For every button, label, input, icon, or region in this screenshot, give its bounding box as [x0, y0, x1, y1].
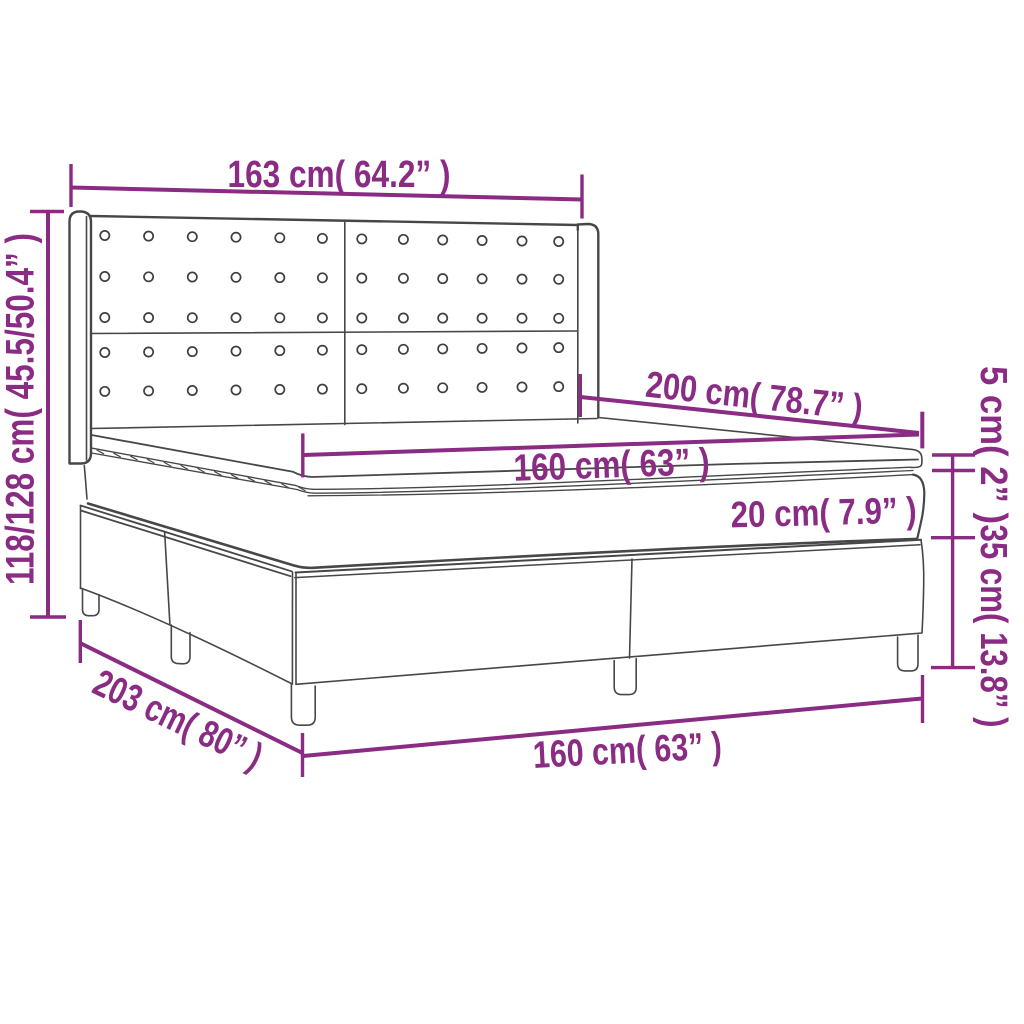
svg-text:5 cm( 2” ): 5 cm( 2” ) [972, 366, 1014, 524]
svg-text:160 cm( 63” ): 160 cm( 63” ) [513, 441, 710, 490]
svg-text:35 cm( 13.8” ): 35 cm( 13.8” ) [972, 525, 1014, 728]
svg-text:118/128 cm( 45.5/50.4” ): 118/128 cm( 45.5/50.4” ) [0, 233, 43, 585]
svg-text:20 cm( 7.9” ): 20 cm( 7.9” ) [730, 490, 917, 536]
svg-text:163 cm( 64.2” ): 163 cm( 64.2” ) [228, 154, 451, 196]
